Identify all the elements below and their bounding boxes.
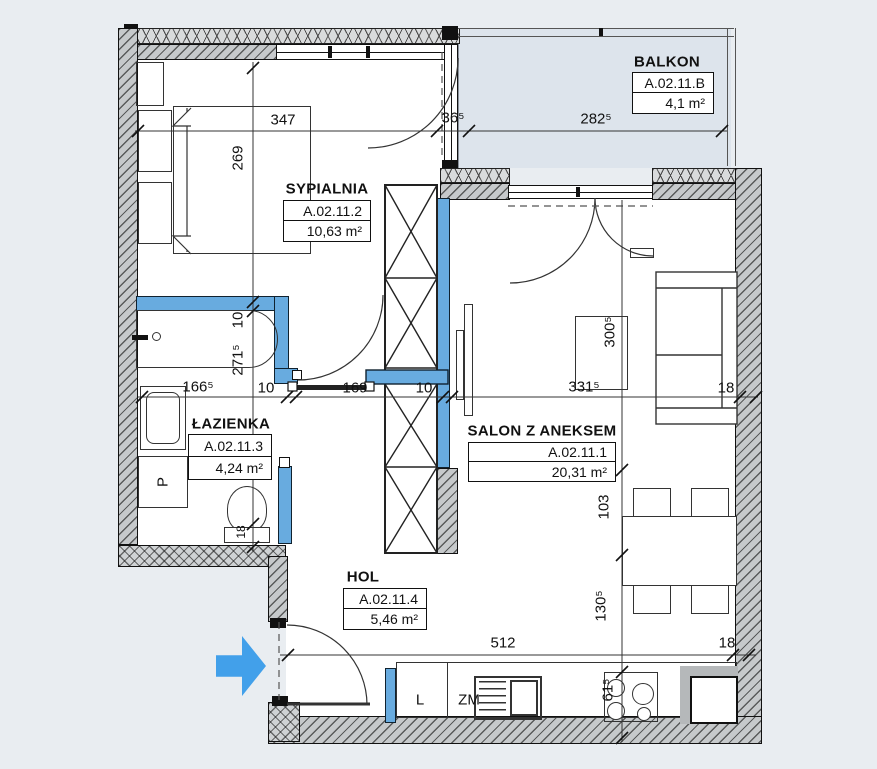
dim-347: 347 (270, 113, 295, 128)
room-box-lazienka: A.02.11.3 4,24 m² (188, 434, 272, 480)
technical-shaft (385, 185, 437, 553)
balcony-door-arc-left (510, 198, 595, 283)
room-title-sypialnia: SYPIALNIA (286, 181, 369, 198)
bedroom-balcony-door-arc (368, 58, 458, 148)
dim-169: 169 (342, 381, 367, 396)
room-box-balkon: A.02.11.B 4,1 m² (632, 72, 714, 114)
washing-machine-label: P (155, 477, 172, 487)
room-code: A.02.11.3 (189, 435, 271, 457)
balcony-door-arc-right (595, 198, 653, 256)
room-code: A.02.11.2 (284, 201, 370, 221)
installation-wall-arm (366, 370, 448, 384)
dim-18-bottom: 18 (719, 636, 736, 651)
room-code: A.02.11.1 (469, 443, 615, 462)
dim-282-5: 282⁵ (580, 112, 611, 127)
room-area: 4,24 m² (189, 457, 271, 479)
bed-details (173, 108, 191, 254)
dim-18-mid: 18 (718, 381, 735, 396)
dim-271-5: 271⁵ (231, 344, 246, 375)
room-area: 5,46 m² (344, 609, 426, 629)
room-box-hol: A.02.11.4 5,46 m² (343, 588, 427, 630)
room-code: A.02.11.4 (344, 589, 426, 609)
room-area: 10,63 m² (284, 221, 370, 241)
fridge-label: L (416, 692, 424, 709)
dim-10-left: 10 (258, 381, 275, 396)
dim-61-5: 61⁵ (601, 679, 616, 702)
entrance-door-arc (287, 625, 367, 705)
drawing-overlay (0, 0, 877, 769)
room-title-lazienka: ŁAZIENKA (192, 416, 270, 433)
dim-10-bath: 10 (231, 312, 246, 329)
room-title-salon: SALON Z ANEKSEM (468, 423, 617, 440)
dim-18-bath: 18 (235, 525, 247, 538)
room-title-hol: HOL (347, 569, 380, 586)
room-code: A.02.11.B (633, 73, 713, 93)
dim-36-5: 36⁵ (442, 111, 465, 126)
dim-103: 103 (597, 494, 612, 519)
dim-10-right: 10 (416, 381, 433, 396)
dim-331-5: 331⁵ (568, 380, 599, 395)
room-box-salon: A.02.11.1 20,31 m² (468, 442, 616, 482)
room-title-balkon: BALKON (634, 54, 700, 71)
dim-300-5: 300⁵ (603, 316, 618, 347)
dishwasher-label: ZM (458, 692, 480, 709)
sofa (656, 272, 737, 424)
dim-166-5: 166⁵ (182, 380, 213, 395)
room-area: 4,1 m² (633, 93, 713, 113)
room-box-sypialnia: A.02.11.2 10,63 m² (283, 200, 371, 242)
dim-512: 512 (490, 636, 515, 651)
floor-plan: 347 36⁵ 282⁵ 269 166⁵ 10 169 10 331⁵ 18 … (0, 0, 877, 769)
room-area: 20,31 m² (469, 462, 615, 481)
dim-269: 269 (231, 145, 246, 170)
bedroom-door-arc (298, 295, 383, 380)
dim-130-5: 130⁵ (594, 590, 609, 621)
